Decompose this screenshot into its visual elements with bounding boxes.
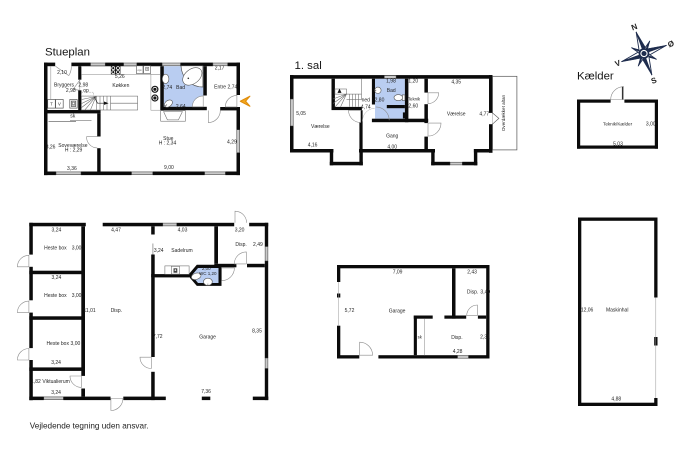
svg-text:4,74: 4,74 (361, 105, 371, 111)
svg-text:2,10: 2,10 (57, 70, 67, 76)
svg-text:WC 1,20: WC 1,20 (199, 271, 217, 276)
svg-text:Disp.: Disp. (451, 335, 462, 341)
svg-text:T: T (50, 102, 53, 107)
svg-text:3,00: 3,00 (72, 293, 82, 299)
svg-text:2,00: 2,00 (202, 266, 211, 271)
svg-text:Disp.: Disp. (235, 242, 246, 248)
svg-text:5,26: 5,26 (115, 74, 125, 80)
svg-text:5,72: 5,72 (345, 308, 355, 314)
svg-text:Heste box: Heste box (44, 293, 67, 299)
svg-text:Stueplan: Stueplan (45, 47, 90, 59)
svg-text:ned: ned (362, 98, 371, 104)
svg-text:Teknik/Kælder: Teknik/Kælder (603, 122, 633, 127)
svg-text:Bad: Bad (387, 88, 396, 94)
svg-text:3,00: 3,00 (72, 246, 82, 252)
svg-text:1,82: 1,82 (31, 379, 41, 385)
svg-text:Garage: Garage (389, 309, 406, 315)
svg-text:4,29: 4,29 (227, 140, 237, 146)
svg-text:sk: sk (70, 113, 76, 119)
svg-text:V: V (58, 102, 61, 107)
svg-text:2,74: 2,74 (162, 85, 172, 91)
svg-text:4,88: 4,88 (611, 397, 621, 403)
svg-text:2,43: 2,43 (467, 270, 477, 276)
svg-text:5,05: 5,05 (296, 111, 306, 117)
svg-text:7,72: 7,72 (153, 334, 163, 340)
svg-text:Entre: Entre (214, 85, 226, 91)
svg-text:12,06: 12,06 (581, 307, 594, 313)
svg-text:4,35: 4,35 (451, 79, 461, 85)
svg-text:Overdækket altan: Overdækket altan (501, 94, 506, 131)
svg-text:3,24: 3,24 (52, 228, 62, 234)
svg-text:Garage: Garage (199, 334, 216, 340)
svg-text:4,77: 4,77 (479, 111, 489, 117)
svg-text:H : 2,29: H : 2,29 (65, 147, 83, 153)
svg-text:7,09: 7,09 (393, 270, 403, 276)
svg-text:3,40: 3,40 (480, 289, 490, 295)
svg-text:2,64: 2,64 (176, 104, 186, 110)
svg-text:5,03: 5,03 (613, 142, 623, 148)
svg-text:2,80: 2,80 (375, 98, 385, 104)
svg-text:1,98: 1,98 (386, 79, 396, 85)
svg-text:3,36: 3,36 (67, 166, 77, 172)
svg-text:11,01: 11,01 (84, 308, 96, 314)
svg-text:Værelse: Værelse (311, 124, 330, 130)
svg-text:Gang: Gang (386, 134, 398, 140)
svg-text:3,00: 3,00 (71, 341, 81, 347)
svg-text:Teknik: Teknik (408, 97, 421, 102)
svg-text:4,00: 4,00 (387, 145, 397, 151)
svg-text:1,20: 1,20 (408, 79, 418, 85)
svg-text:Sadelrum: Sadelrum (171, 248, 192, 254)
svg-text:8,35: 8,35 (252, 328, 262, 334)
svg-text:2,98: 2,98 (66, 88, 76, 94)
svg-text:Heste box: Heste box (46, 341, 69, 347)
svg-text:Heste box: Heste box (44, 246, 67, 252)
svg-text:Vejledende tegning uden ansvar: Vejledende tegning uden ansvar. (30, 421, 149, 430)
svg-text:2,31: 2,31 (480, 335, 490, 341)
svg-text:4,03: 4,03 (178, 228, 188, 234)
svg-text:2,74: 2,74 (228, 85, 238, 91)
svg-text:3,26: 3,26 (46, 145, 56, 151)
svg-text:Køkken: Køkken (112, 83, 129, 89)
svg-text:3,00: 3,00 (646, 122, 656, 128)
svg-text:2,60: 2,60 (408, 103, 418, 109)
svg-text:Maskinhal: Maskinhal (606, 307, 629, 313)
svg-text:Kælder: Kælder (577, 71, 614, 83)
svg-text:Viktualierum: Viktualierum (42, 379, 69, 385)
svg-text:3,24: 3,24 (51, 360, 61, 366)
svg-text:3,24: 3,24 (51, 390, 61, 396)
svg-text:Disp.: Disp. (111, 308, 122, 314)
svg-text:opv: opv (138, 69, 143, 72)
svg-text:Bad: Bad (176, 85, 185, 91)
svg-text:4,47: 4,47 (111, 228, 121, 234)
svg-text:7,36: 7,36 (201, 389, 211, 395)
svg-text:Disp.: Disp. (467, 289, 478, 295)
svg-text:3,24: 3,24 (154, 248, 164, 254)
svg-text:H : 2,34: H : 2,34 (159, 140, 177, 146)
svg-text:3,24: 3,24 (52, 275, 62, 281)
svg-text:2,49: 2,49 (253, 242, 263, 248)
svg-text:op: op (83, 88, 89, 94)
svg-text:4,28: 4,28 (453, 349, 463, 355)
svg-text:9,00: 9,00 (164, 165, 174, 171)
svg-text:Værelse: Værelse (447, 111, 466, 117)
svg-text:1. sal: 1. sal (295, 60, 322, 72)
svg-text:2,17: 2,17 (215, 65, 225, 71)
svg-text:4,16: 4,16 (308, 143, 318, 149)
svg-text:3,20: 3,20 (235, 228, 245, 234)
